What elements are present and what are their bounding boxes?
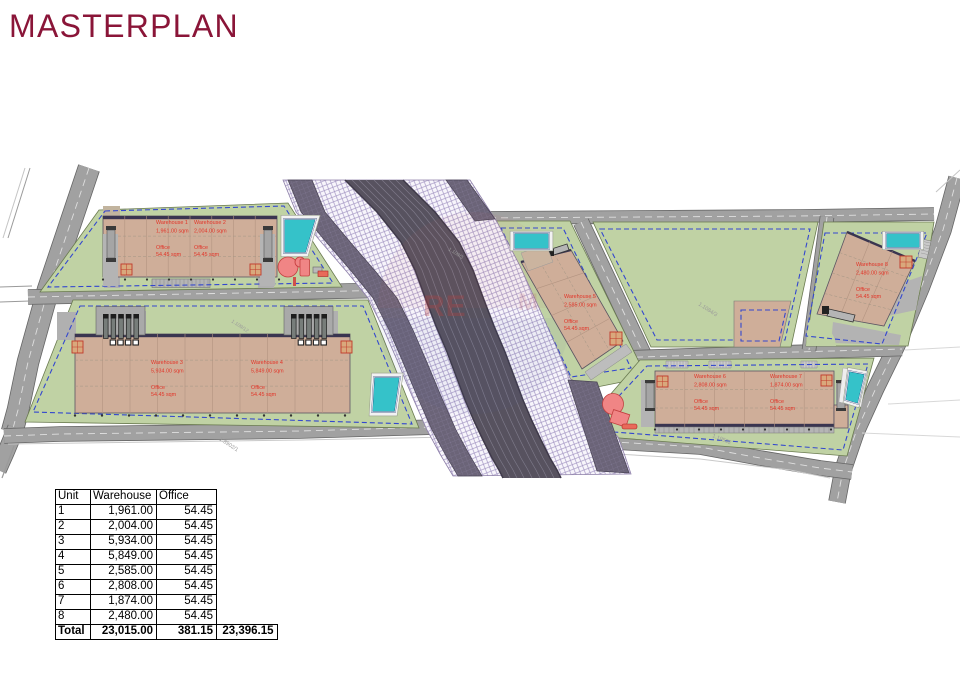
svg-text:5,849.00 sqm: 5,849.00 sqm (251, 369, 284, 375)
svg-text:M: M (518, 289, 538, 316)
svg-text:Warehouse 1: Warehouse 1 (156, 220, 188, 226)
svg-text:54.45 sqm: 54.45 sqm (251, 392, 277, 398)
svg-text:Office: Office (694, 399, 708, 405)
svg-text:54.45 sqm: 54.45 sqm (770, 406, 796, 412)
svg-text:2,004.00 sqm: 2,004.00 sqm (194, 229, 227, 235)
svg-text:5,934.00 sqm: 5,934.00 sqm (151, 369, 184, 375)
svg-text:Warehouse 5: Warehouse 5 (564, 294, 596, 300)
svg-text:Warehouse 2: Warehouse 2 (194, 220, 226, 226)
svg-text:Office: Office (194, 245, 208, 251)
svg-text:54.45 sqm: 54.45 sqm (151, 392, 177, 398)
svg-text:Warehouse 3: Warehouse 3 (151, 360, 183, 366)
svg-text:Office: Office (156, 245, 170, 251)
svg-text:Office: Office (856, 287, 870, 293)
svg-text:Office: Office (251, 385, 265, 391)
svg-text:54.45 sqm: 54.45 sqm (564, 326, 590, 332)
svg-text:Office: Office (151, 385, 165, 391)
svg-text:1,874.00 sqm: 1,874.00 sqm (770, 383, 803, 389)
svg-text:Warehouse 6: Warehouse 6 (694, 374, 726, 380)
svg-text:Warehouse 7: Warehouse 7 (770, 374, 802, 380)
svg-text:1,961.00 sqm: 1,961.00 sqm (156, 229, 189, 235)
svg-text:2,585.00 sqm: 2,585.00 sqm (564, 303, 597, 309)
svg-text:Office: Office (564, 319, 578, 325)
svg-text:54.45 sqm: 54.45 sqm (856, 294, 882, 300)
svg-text:54.45 sqm: 54.45 sqm (194, 252, 220, 258)
svg-text:2,480.00 sqm: 2,480.00 sqm (856, 271, 889, 277)
svg-text:Warehouse 8: Warehouse 8 (856, 262, 888, 268)
svg-text:RE: RE (423, 290, 467, 323)
svg-text:2,808.00 sqm: 2,808.00 sqm (694, 383, 727, 389)
svg-text:Office: Office (770, 399, 784, 405)
svg-text:54.45 sqm: 54.45 sqm (694, 406, 720, 412)
svg-text:54.45 sqm: 54.45 sqm (156, 252, 182, 258)
svg-text:Warehouse 4: Warehouse 4 (251, 360, 283, 366)
